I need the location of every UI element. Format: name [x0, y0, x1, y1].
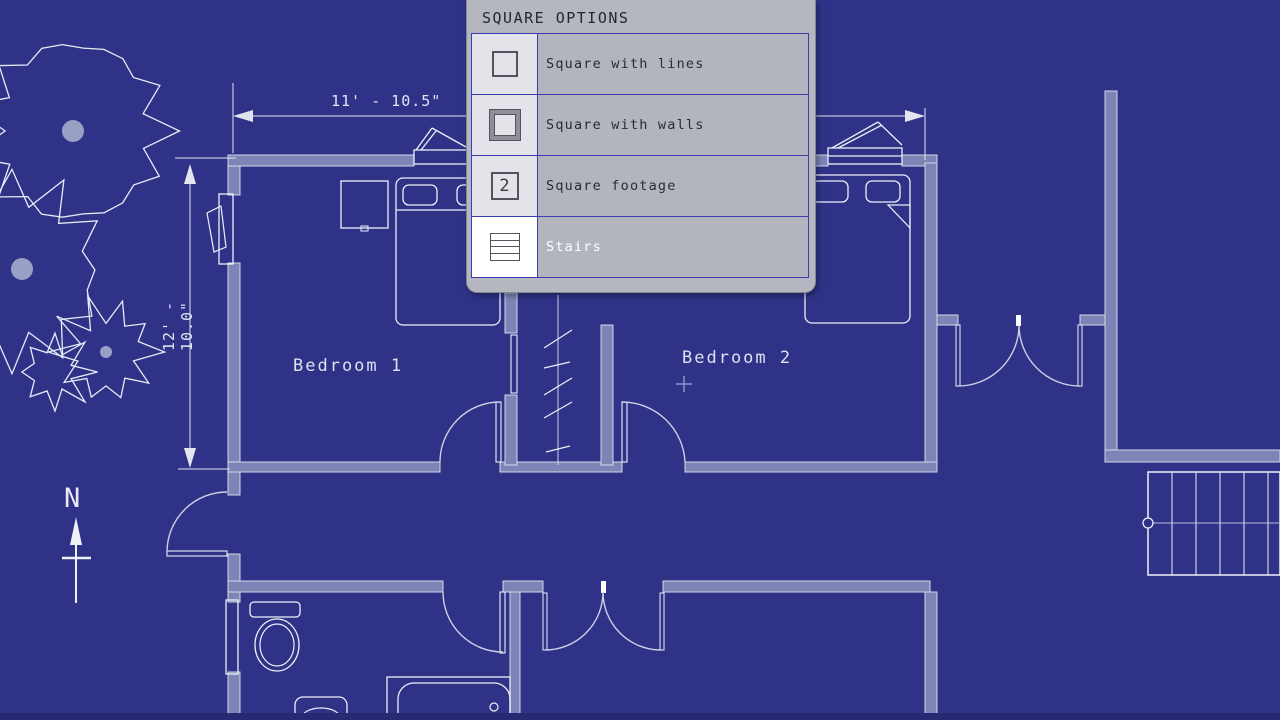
dimension-horizontal-label: 11' - 10.5" — [331, 92, 441, 110]
menu-title: SQUARE OPTIONS — [467, 0, 815, 33]
app-window: Bedroom 1 Bedroom 2 11' - 10.5" 12' - 10… — [0, 0, 1280, 720]
menu-item-list: Square with lines Square with walls 2 Sq… — [471, 33, 809, 278]
menu-item-label: Square with walls — [538, 95, 808, 155]
bottom-edge-strip — [0, 713, 1280, 720]
square-with-lines-icon — [472, 34, 538, 94]
menu-item-square-with-lines[interactable]: Square with lines — [472, 34, 808, 95]
square-with-walls-icon — [472, 95, 538, 155]
stairs-icon — [472, 217, 538, 277]
menu-item-label: Square with lines — [538, 34, 808, 94]
menu-item-stairs[interactable]: Stairs — [472, 217, 808, 277]
room-label-bedroom-2: Bedroom 2 — [682, 348, 792, 368]
menu-item-label: Stairs — [538, 217, 808, 277]
square-options-menu: SQUARE OPTIONS Square with lines Square … — [466, 0, 816, 293]
square-footage-icon: 2 — [472, 156, 538, 216]
menu-item-square-with-walls[interactable]: Square with walls — [472, 95, 808, 156]
dimension-vertical-label: 12' - 10.0" — [160, 271, 196, 381]
menu-item-label: Square footage — [538, 156, 808, 216]
menu-item-square-footage[interactable]: 2 Square footage — [472, 156, 808, 217]
north-compass-label: N — [64, 483, 80, 514]
room-label-bedroom-1: Bedroom 1 — [293, 356, 403, 376]
